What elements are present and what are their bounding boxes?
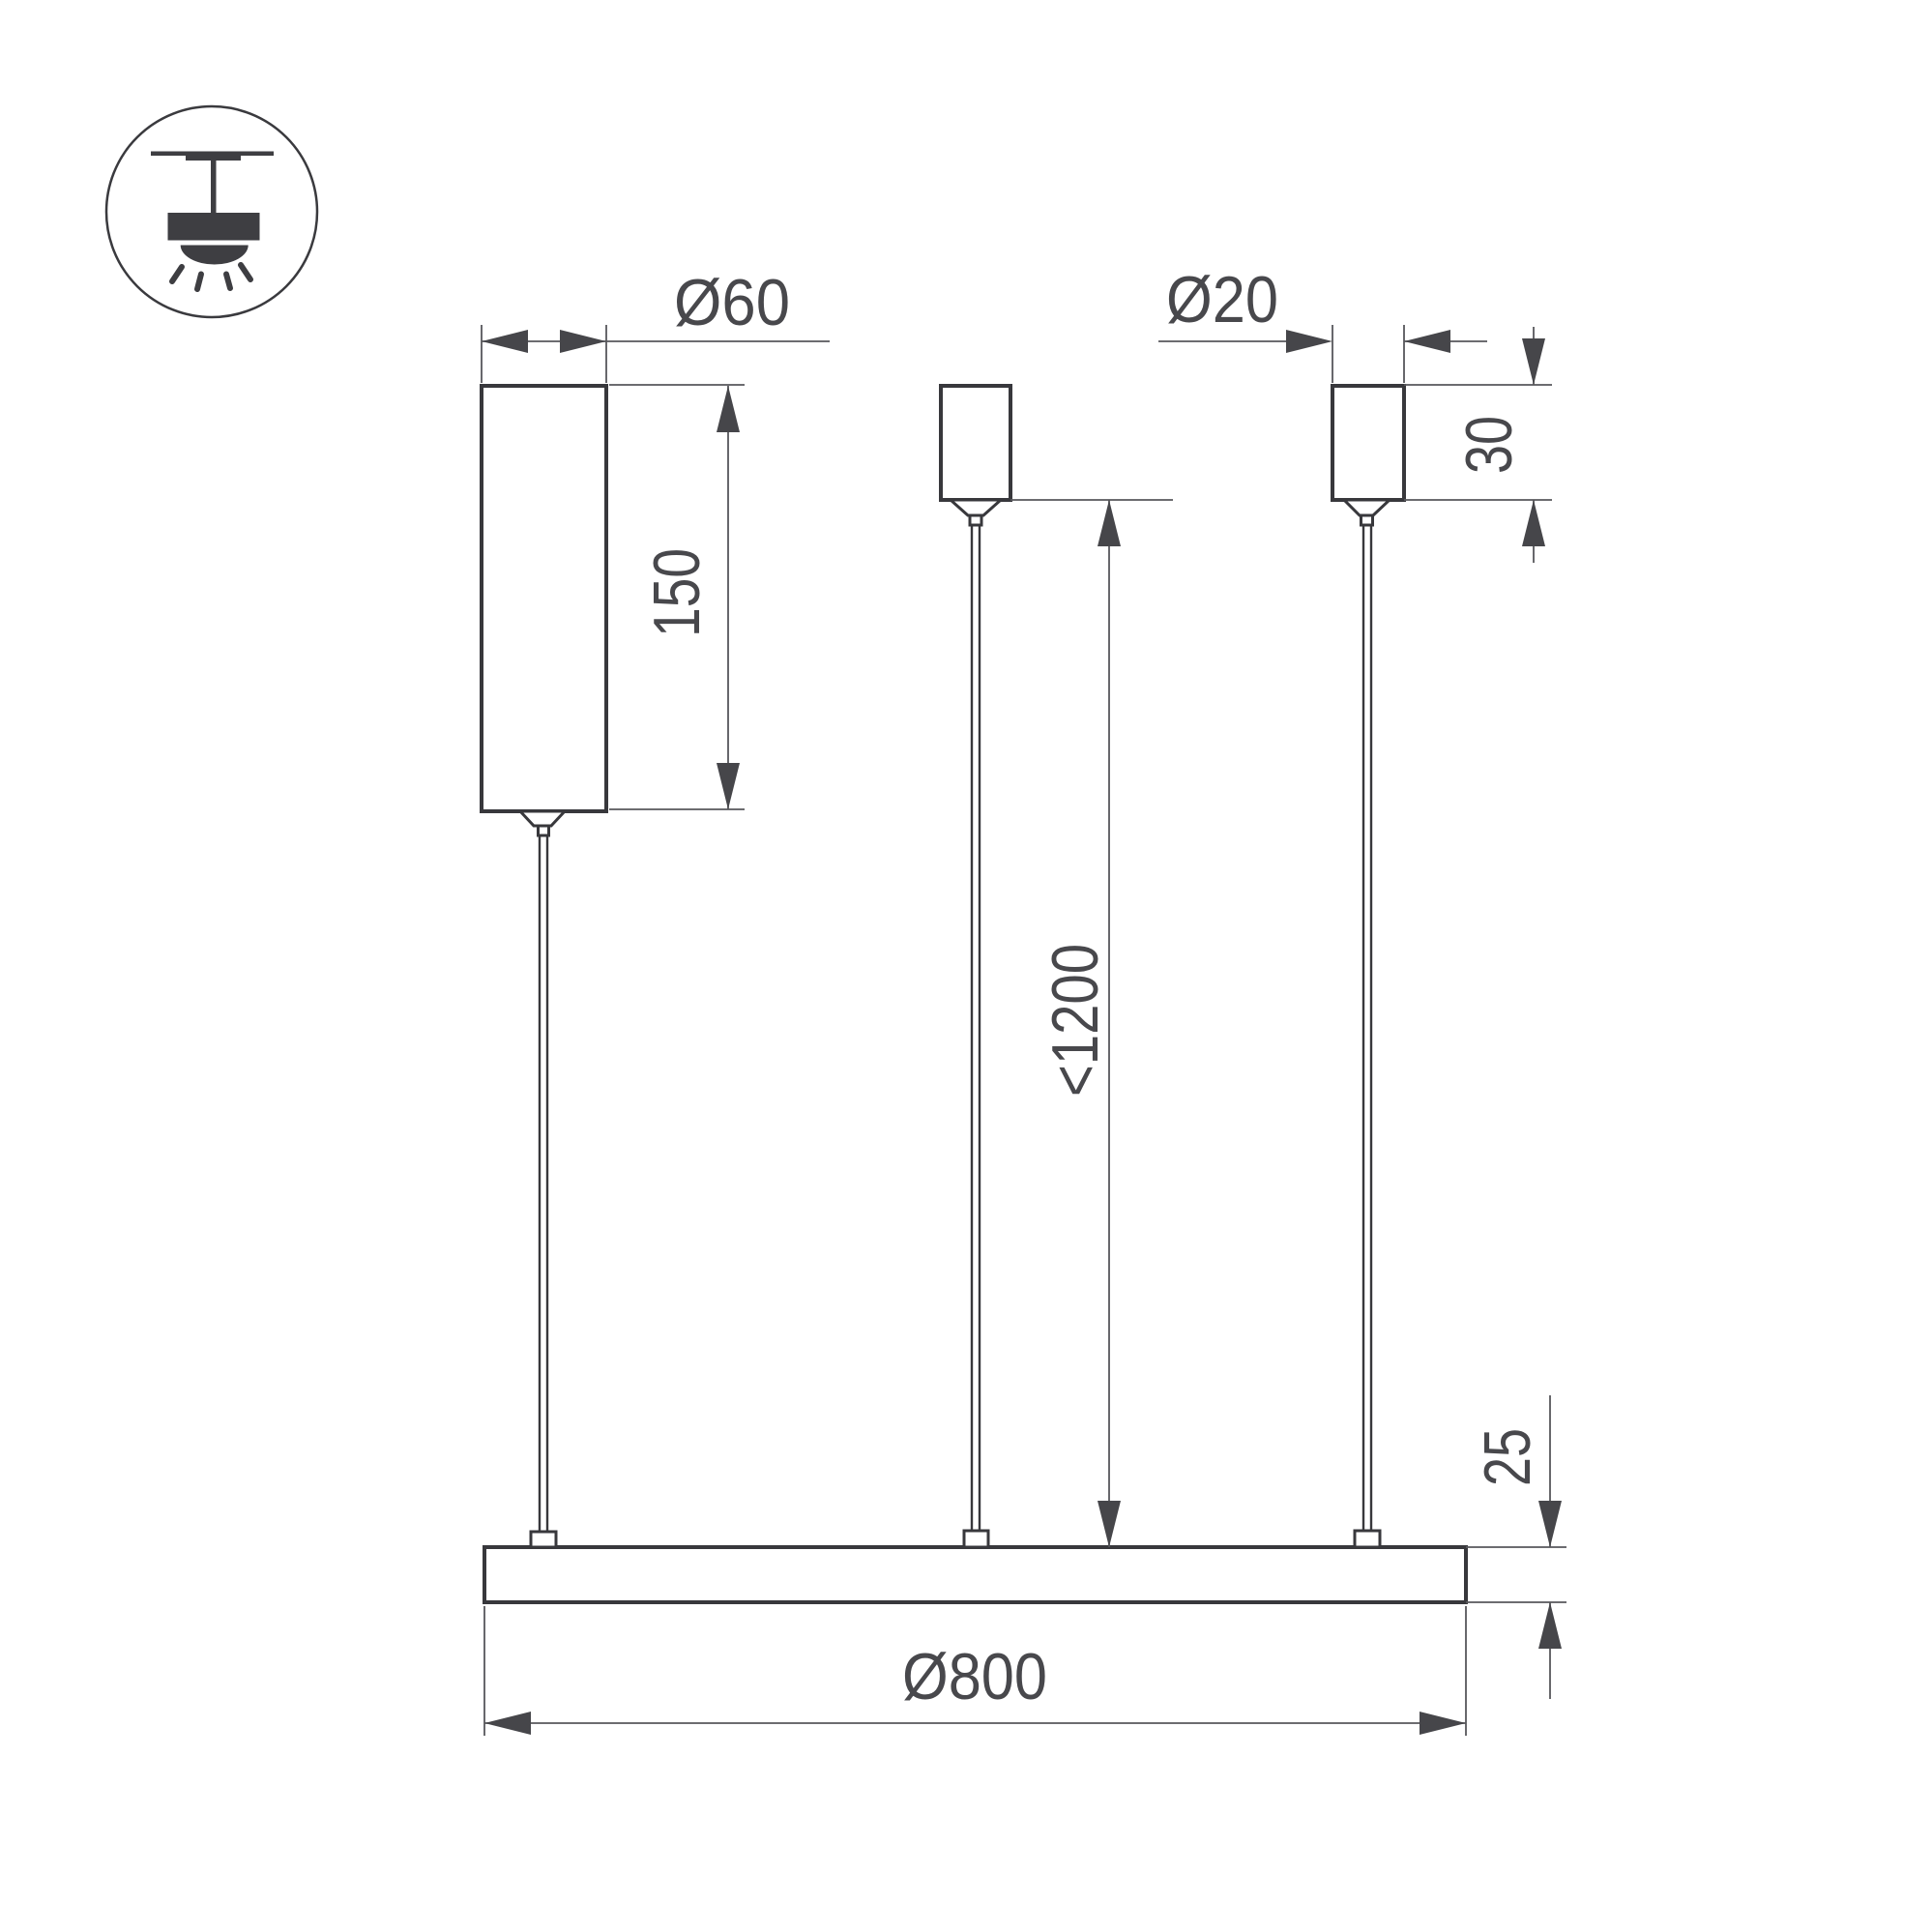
dim-label-canopy-diameter: Ø20 — [1166, 263, 1278, 337]
bar-fitting-left — [531, 1532, 556, 1547]
driver-cable-gripper — [539, 826, 549, 835]
canopy-right — [1332, 386, 1404, 525]
suspension-cable-right — [1363, 524, 1371, 1532]
arrow-up-icon — [717, 386, 740, 432]
canopy-right-body — [1332, 386, 1404, 500]
dim-ring-diameter: Ø800 — [484, 1606, 1466, 1736]
arrow-up-icon — [1098, 500, 1121, 546]
dim-label-canopy-height: 30 — [1452, 416, 1526, 474]
arrow-down-icon — [717, 763, 740, 809]
dim-label-driver-diameter: Ø60 — [674, 266, 790, 339]
driver-cylinder — [482, 386, 606, 811]
dim-label-driver-length: 150 — [640, 548, 714, 637]
canopy-right-gripper — [1361, 515, 1373, 525]
pendant-ceiling-mount-icon — [106, 106, 317, 317]
arrow-up-icon — [1538, 1602, 1562, 1649]
dim-driver-length: 150 — [609, 385, 745, 809]
canopy-middle — [941, 386, 1010, 525]
arrow-right-icon — [560, 330, 606, 353]
bar-fitting-middle — [964, 1531, 988, 1547]
arrow-up-icon — [1522, 500, 1545, 546]
arrow-left-icon — [1404, 330, 1450, 353]
icon-stem — [211, 160, 217, 216]
technical-drawing: Ø60 150 Ø20 30 <1200 25 Ø8 — [0, 0, 1932, 1932]
arrow-down-icon — [1538, 1501, 1562, 1547]
dim-suspension-length: <1200 — [1010, 500, 1173, 1547]
fixture-bar — [484, 1531, 1466, 1602]
dim-label-ring-diameter: Ø800 — [902, 1640, 1047, 1713]
icon-light-ray — [226, 275, 230, 289]
arrow-left-icon — [482, 330, 528, 353]
arrow-down-icon — [1098, 1501, 1121, 1547]
canopy-right-cone — [1344, 500, 1390, 515]
arrow-right-icon — [1420, 1712, 1466, 1735]
icon-light-ray — [172, 267, 182, 281]
drawing-page: Ø60 150 Ø20 30 <1200 25 Ø8 — [0, 0, 1932, 1932]
dim-canopy-diameter: Ø20 — [1158, 263, 1487, 383]
suspension-cable-middle — [972, 524, 980, 1532]
icon-light-dome — [181, 246, 249, 265]
dim-profile-height: 25 — [1466, 1395, 1566, 1699]
ring-profile — [484, 1547, 1466, 1602]
driver-housing — [482, 386, 606, 835]
suspension-cable-left — [540, 834, 547, 1533]
arrow-left-icon — [484, 1712, 531, 1735]
suspension-cables — [540, 524, 1371, 1533]
dim-label-profile-height: 25 — [1471, 1428, 1544, 1486]
canopy-middle-gripper — [970, 515, 981, 525]
driver-cable-cone — [520, 811, 565, 826]
dim-canopy-height: 30 — [1404, 327, 1552, 563]
dim-driver-diameter: Ø60 — [482, 266, 830, 383]
arrow-down-icon — [1522, 338, 1545, 385]
dim-label-suspension-length: <1200 — [1039, 944, 1112, 1097]
bar-fitting-right — [1355, 1531, 1380, 1547]
icon-light-ray — [197, 275, 201, 290]
icon-lamp-body — [168, 213, 260, 241]
icon-ceiling-line — [151, 152, 274, 157]
canopy-middle-body — [941, 386, 1010, 500]
arrow-right-icon — [1286, 330, 1332, 353]
icon-light-ray — [241, 265, 250, 279]
canopy-middle-cone — [951, 500, 1001, 515]
